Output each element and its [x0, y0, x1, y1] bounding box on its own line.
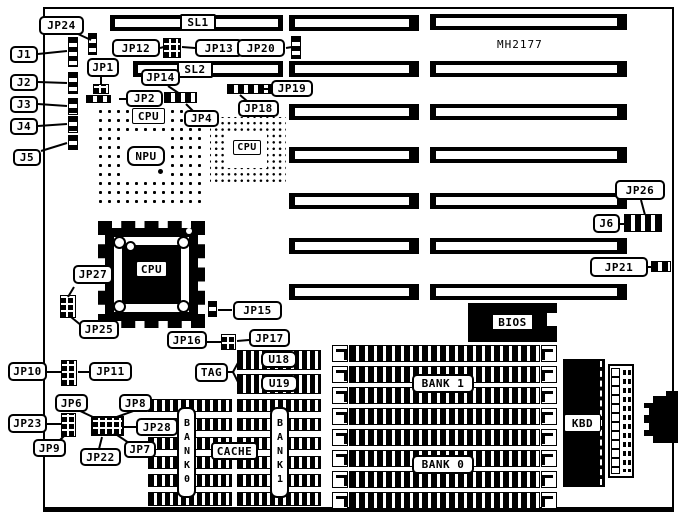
jumper-label-jp15: JP15 [233, 301, 282, 320]
bank1-cache-label: BANK1 [270, 407, 289, 498]
jumper-label-jp18: JP18 [238, 100, 279, 117]
jumper-label-jp28: JP28 [136, 418, 178, 436]
cpu-pga2-label: CPU [233, 140, 261, 155]
bank0-simm-label: BANK 0 [412, 455, 474, 474]
jumper-label-jp27: JP27 [73, 265, 113, 284]
bios-label: BIOS [491, 313, 534, 331]
jumper-label-jp11: JP11 [89, 362, 132, 381]
jumper-label-jp26: JP26 [615, 180, 665, 200]
bank0-cache-label: BANK0 [177, 407, 196, 498]
kbd-label: KBD [564, 414, 601, 432]
cpu-qfp-label: CPU [136, 261, 167, 277]
slot-label-sl2: SL2 [177, 61, 213, 78]
jumper-label-jp16: JP16 [167, 331, 207, 349]
u19-label: U19 [261, 375, 298, 392]
jumper-label-jp9: JP9 [33, 439, 66, 457]
slot-label-sl1: SL1 [180, 14, 216, 31]
jumper-label-jp2: JP2 [126, 90, 163, 107]
cache-label: CACHE [211, 442, 258, 460]
tag-label: TAG [195, 363, 228, 382]
connector-label-j4: J4 [10, 118, 38, 135]
jumper-label-jp6: JP6 [55, 394, 88, 412]
jumper-label-jp22: JP22 [80, 448, 121, 466]
u18-label: U18 [261, 351, 297, 368]
jumper-label-jp21: JP21 [590, 257, 648, 277]
jumper-label-jp13: JP13 [195, 39, 243, 57]
connector-label-j2: J2 [10, 74, 38, 91]
jumper-label-jp24: JP24 [39, 16, 84, 35]
jumper-label-jp4: JP4 [184, 110, 219, 127]
cpu-socket-label: CPU [132, 108, 165, 124]
connector-label-j6: J6 [593, 214, 620, 233]
jumper-label-jp25: JP25 [79, 320, 119, 339]
connector-label-j3: J3 [10, 96, 38, 113]
jumper-label-jp8: JP8 [119, 394, 152, 412]
jumper-label-jp17: JP17 [249, 329, 290, 347]
jumper-label-jp19: JP19 [271, 80, 313, 97]
connector-label-j1: J1 [10, 46, 38, 63]
jumper-label-jp1: JP1 [87, 58, 119, 77]
jumper-label-jp14: JP14 [141, 69, 180, 86]
jumper-label-jp23: JP23 [8, 414, 47, 433]
connector-label-j5: J5 [13, 149, 41, 166]
bank1-simm-label: BANK 1 [412, 374, 474, 393]
jumper-label-jp12: JP12 [112, 39, 160, 57]
jumper-label-jp20: JP20 [237, 39, 285, 57]
npu-label: NPU [127, 146, 165, 166]
jumper-label-jp7: JP7 [124, 441, 156, 458]
jumper-label-jp10: JP10 [8, 362, 47, 381]
motherboard-diagram: MH2177 [0, 0, 681, 527]
